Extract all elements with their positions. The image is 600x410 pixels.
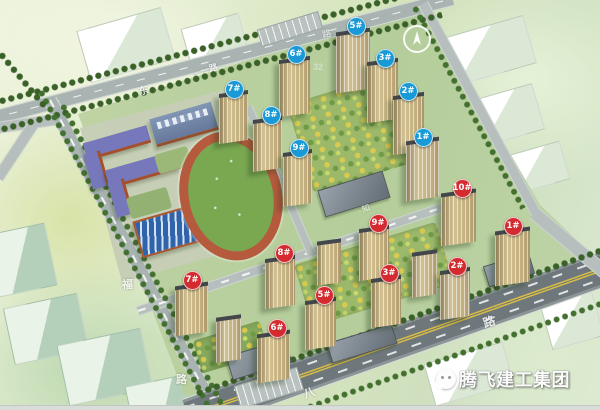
tower-n5 <box>336 28 370 94</box>
watermark-brand-text: 腾飞建工集团 <box>459 366 570 392</box>
wechat-icon <box>436 369 456 389</box>
building-badge-south-3: 3# <box>380 264 399 283</box>
building-badge-south-1: 1# <box>504 217 523 236</box>
building-badge-south-2: 2# <box>448 257 467 276</box>
building-badge-south-9: 9# <box>369 214 388 233</box>
aerial-masterplan-rendering: 东一路路福路八路知32 5#6#3#7#2#8#1#9#10#9#1#8#2#3… <box>0 0 600 410</box>
tower-s8 <box>265 255 295 309</box>
building-badge-south-8: 8# <box>275 244 294 263</box>
building-badge-north-3: 3# <box>376 49 395 68</box>
tower-sx1 <box>317 238 341 285</box>
building-badge-north-9: 9# <box>290 139 309 158</box>
watermark: 腾飞建工集团 <box>436 366 570 392</box>
building-badge-south-5: 5# <box>315 286 334 305</box>
building-badge-south-6: 6# <box>268 319 287 338</box>
road-label-west-road-lu: 路 <box>176 371 187 387</box>
tower-sx3 <box>216 314 241 363</box>
building-badge-north-7: 7# <box>225 80 244 99</box>
building-badge-south-10: 10# <box>453 179 472 198</box>
tower-s6 <box>257 330 290 384</box>
tower-n9 <box>283 149 312 207</box>
tower-s1 <box>495 227 530 287</box>
tower-s5 <box>305 297 336 350</box>
building-badge-north-8: 8# <box>262 106 281 125</box>
compass-north-icon <box>403 25 431 53</box>
tower-s3 <box>371 275 401 328</box>
building-badge-north-6: 6# <box>287 45 306 64</box>
tower-n6 <box>279 56 310 117</box>
tower-s7 <box>175 282 208 337</box>
building-badge-north-2: 2# <box>399 82 418 101</box>
tower-sx2 <box>412 249 437 298</box>
building-badge-south-7: 7# <box>183 271 202 290</box>
road-label-west-road-fu: 福 <box>122 276 133 292</box>
mark-32: 32 <box>313 62 323 72</box>
image-bottom-border <box>0 405 600 410</box>
building-badge-north-1: 1# <box>414 128 433 147</box>
building-badge-north-5: 5# <box>347 17 366 36</box>
